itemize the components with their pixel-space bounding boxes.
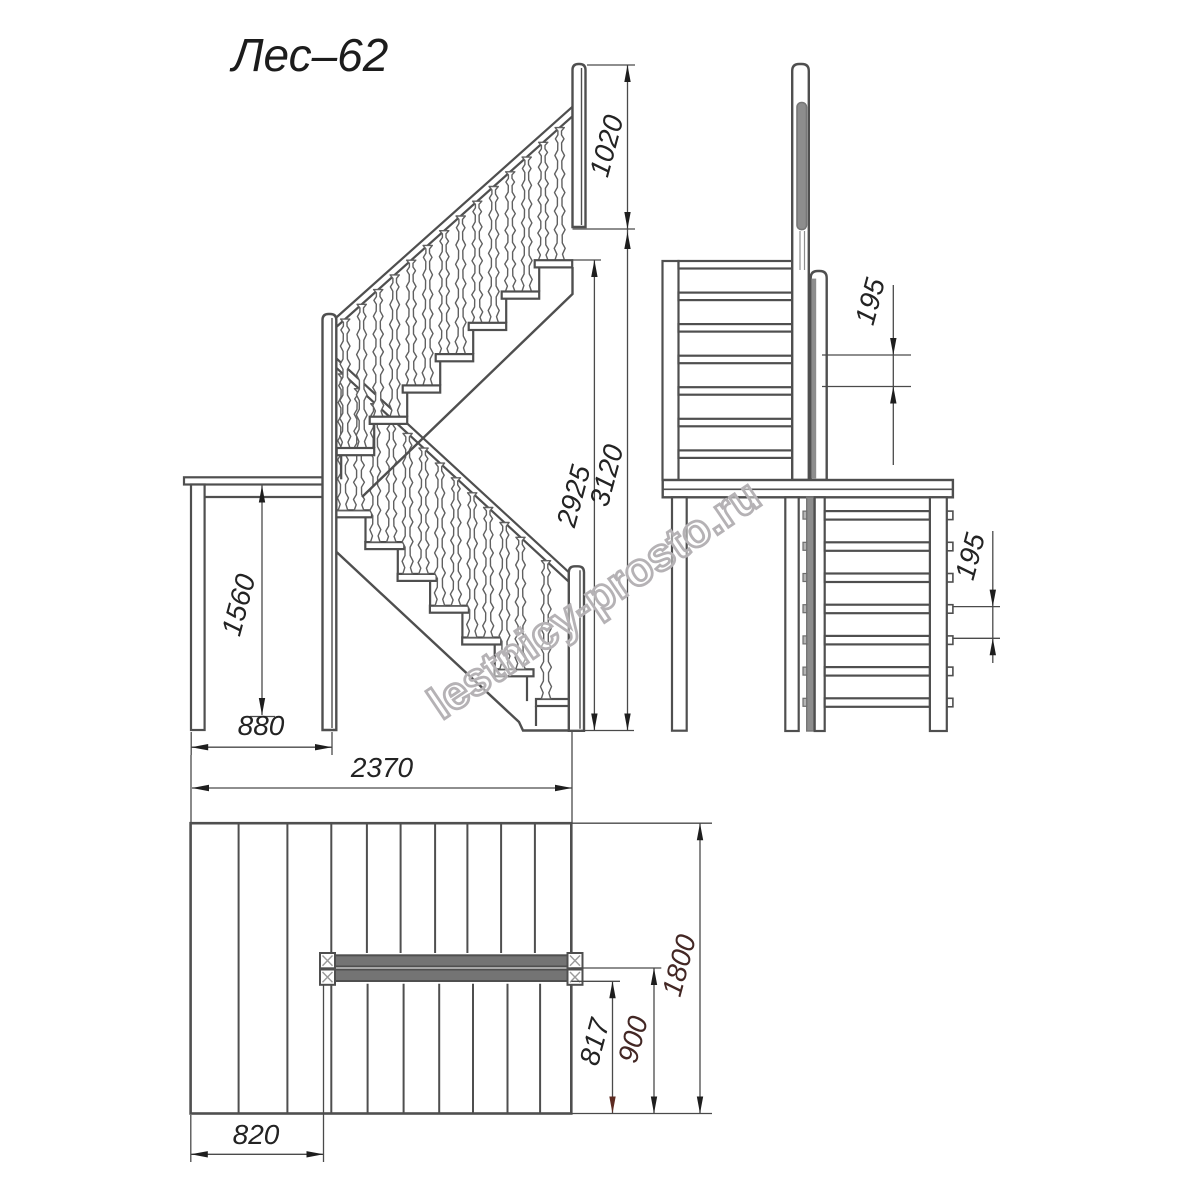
svg-text:2370: 2370: [350, 752, 414, 783]
svg-text:880: 880: [238, 710, 285, 741]
svg-text:820: 820: [233, 1119, 280, 1150]
svg-text:Лес–62: Лес–62: [229, 29, 388, 81]
